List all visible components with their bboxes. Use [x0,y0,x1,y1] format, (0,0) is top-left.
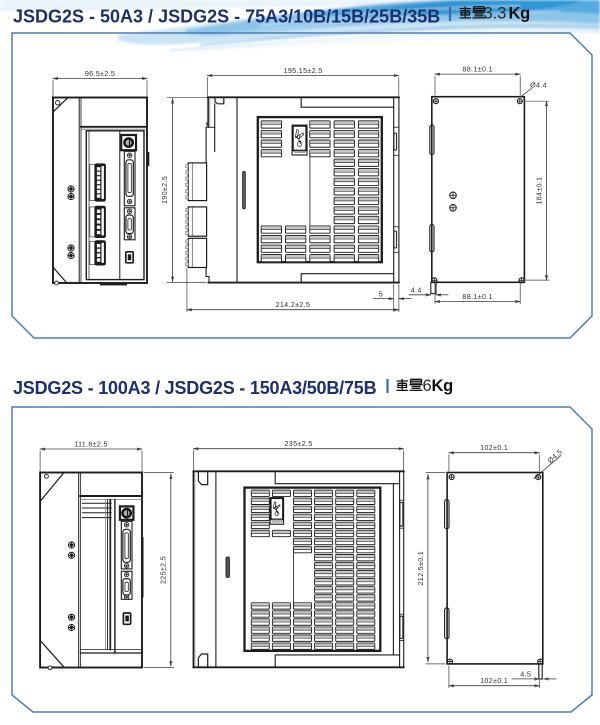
svg-text:96.5±2.5: 96.5±2.5 [85,69,115,78]
svg-text:214.2±2.5: 214.2±2.5 [276,300,311,309]
svg-text:6: 6 [423,377,432,395]
svg-text:Kg: Kg [509,5,530,23]
svg-text:195.15±2.5: 195.15±2.5 [284,66,323,75]
svg-text:235±2.5: 235±2.5 [284,439,312,448]
svg-text:5: 5 [379,290,383,299]
svg-text:4.5: 4.5 [520,669,531,678]
svg-text:Kg: Kg [432,377,453,395]
svg-text:111.6±2.5: 111.6±2.5 [74,439,108,448]
svg-text:4.4: 4.4 [411,286,422,295]
svg-text:JSDG2S - 50A3 / JSDG2S - 75A3/: JSDG2S - 50A3 / JSDG2S - 75A3/10B/15B/25… [13,7,440,27]
svg-text:184±0.1: 184±0.1 [534,177,543,205]
svg-text:212.5±0.1: 212.5±0.1 [416,551,425,586]
svg-text:Ø4.4: Ø4.4 [530,81,547,90]
svg-text:JSDG2S - 100A3 / JSDG2S - 150A: JSDG2S - 100A3 / JSDG2S - 150A3/50B/75B [13,378,377,398]
svg-text:88.1±0.1: 88.1±0.1 [462,292,492,301]
svg-text:190±2.5: 190±2.5 [160,176,169,204]
svg-text:102±0.1: 102±0.1 [480,443,508,452]
svg-text:102±0.1: 102±0.1 [480,676,508,685]
svg-text:88.1±0.1: 88.1±0.1 [462,65,492,74]
svg-text:3.3: 3.3 [484,5,507,23]
svg-text:225±2.5: 225±2.5 [159,556,168,584]
